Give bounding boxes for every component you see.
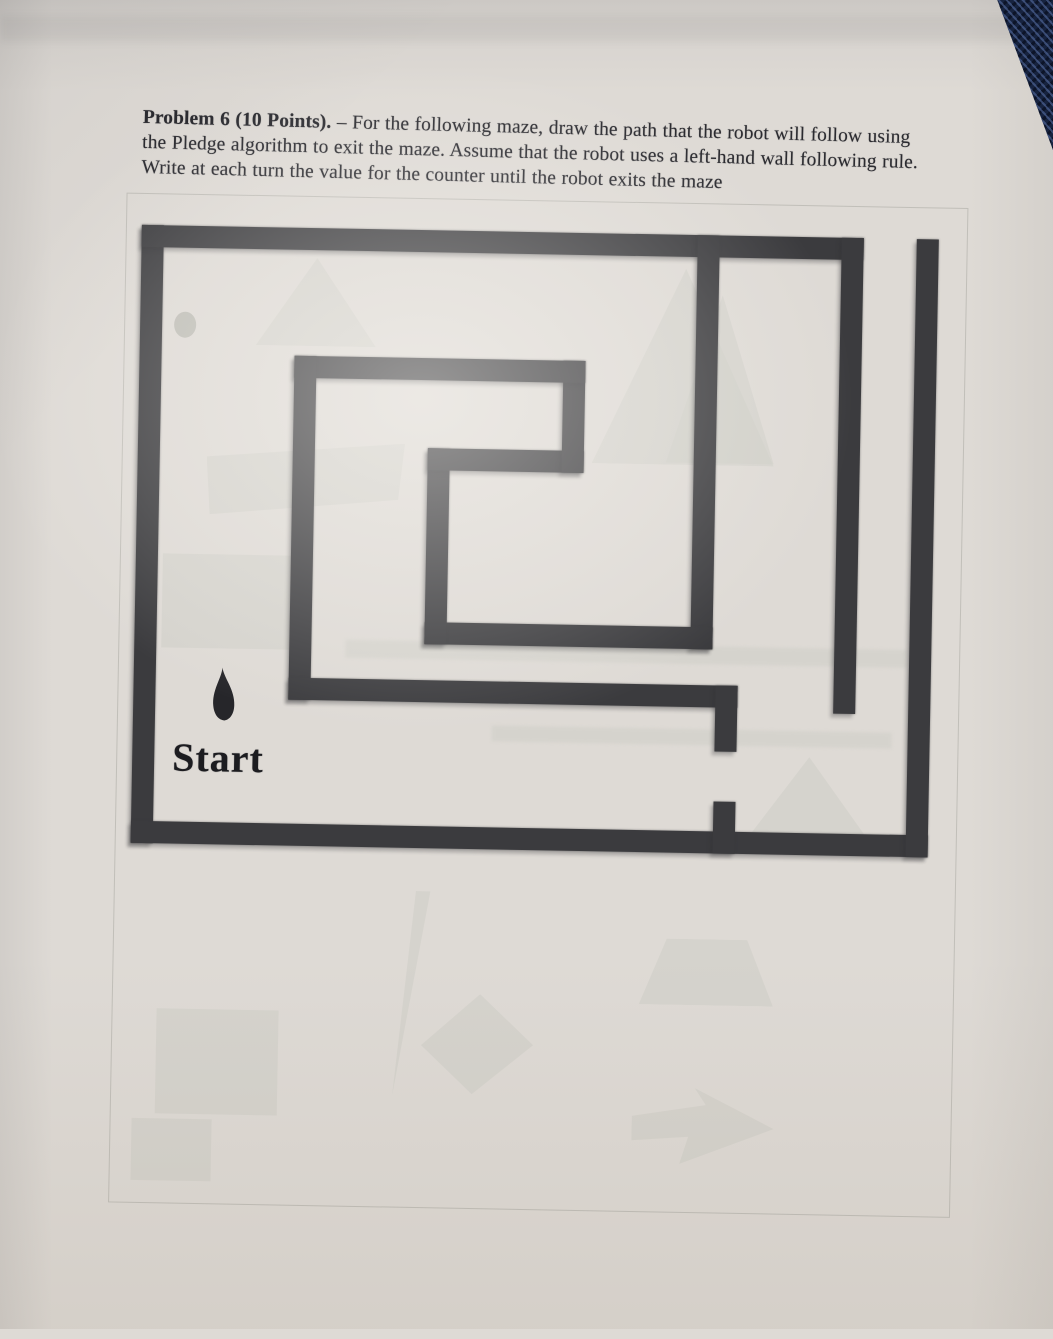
spiral-middle-wall: [428, 448, 584, 473]
robot-icon: [208, 666, 238, 723]
ghost-rect: [130, 1118, 211, 1181]
spiral-outer-left-wall: [288, 356, 316, 700]
inner-vertical-wall-right: [833, 238, 864, 714]
gate-stub-lower: [713, 801, 736, 853]
spiral-outer-bottom-wall: [288, 678, 737, 708]
robot-teardrop-shape: [212, 667, 235, 721]
ghost-rect: [155, 1008, 279, 1115]
gate-stub-upper: [714, 685, 737, 751]
spiral-inner-left-wall: [424, 448, 450, 644]
start-label: Start: [172, 734, 264, 783]
photographed-homework-page: { "document": { "problem_label": "Proble…: [0, 0, 1053, 1329]
spiral-inner-bottom-wall: [424, 622, 712, 649]
paper-sheet: Problem 6 (10 Points). – For the followi…: [0, 0, 1053, 1339]
maze-figure: Start: [131, 225, 939, 858]
inner-vertical-wall-center: [690, 235, 720, 649]
spiral-top-wall: [294, 356, 585, 383]
problem-number-label: Problem 6 (10 Points).: [143, 107, 332, 133]
